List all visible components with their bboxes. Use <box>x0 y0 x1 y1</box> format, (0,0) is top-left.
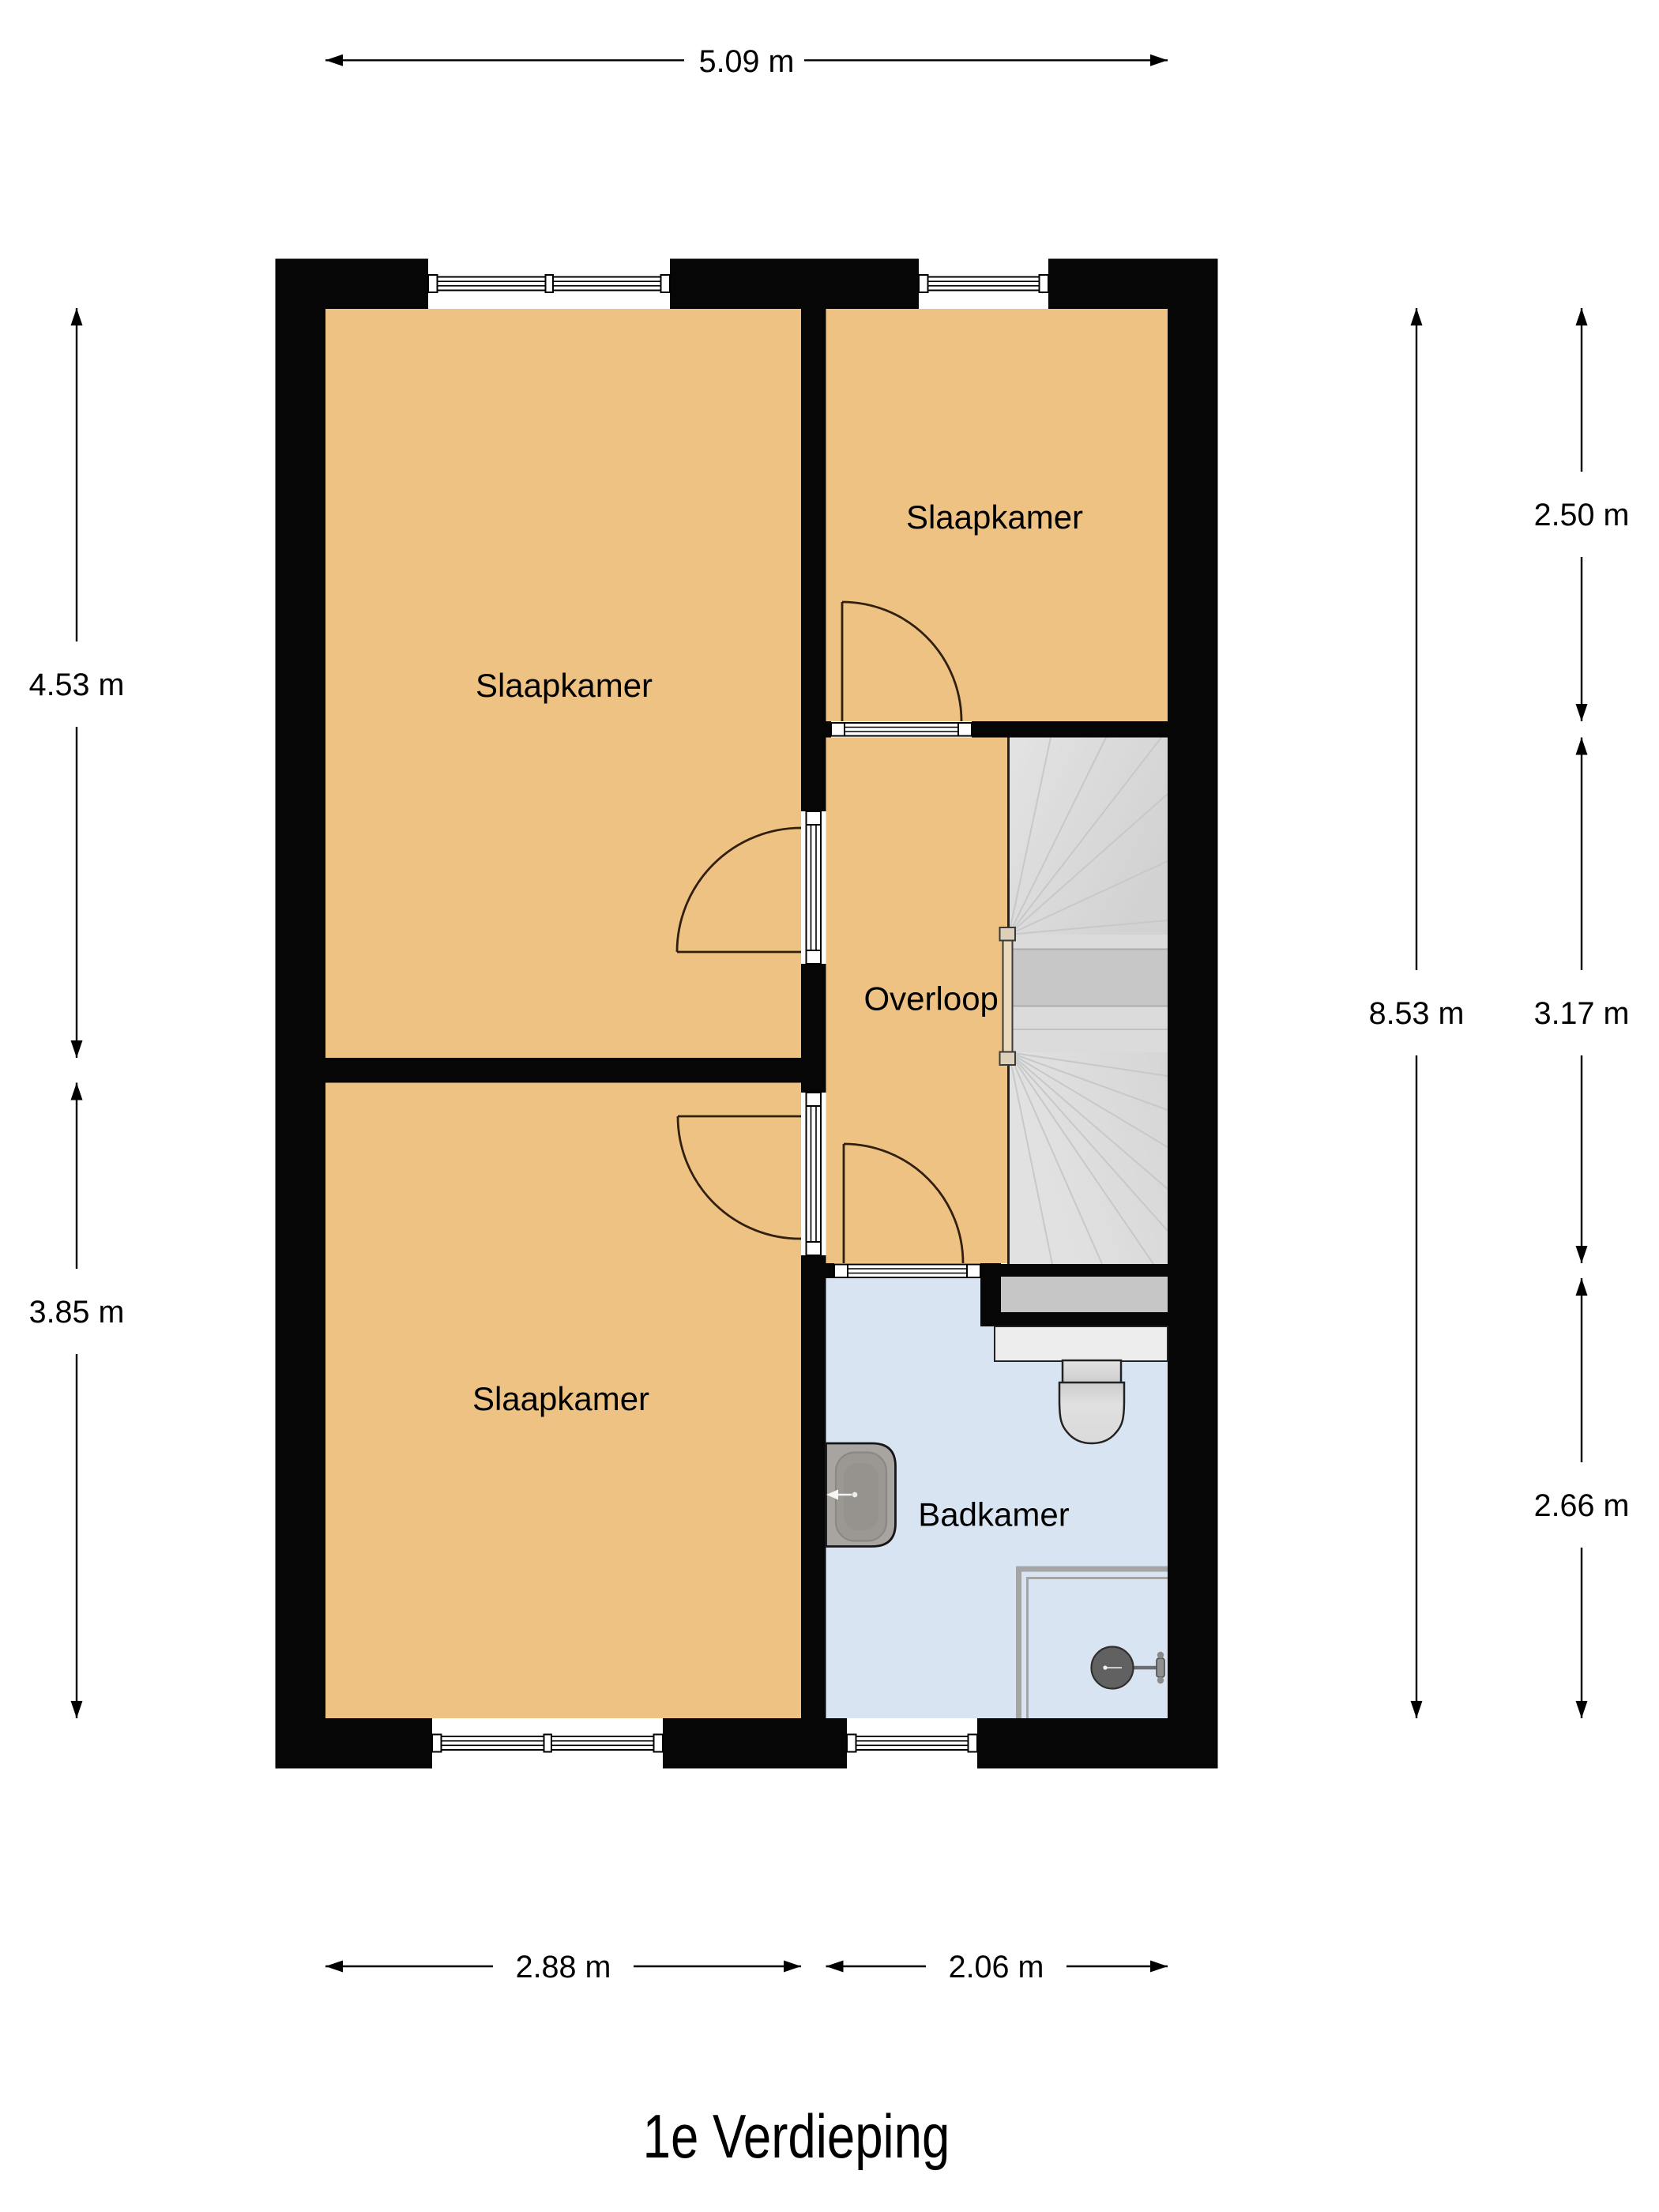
svg-text:5.09 m: 5.09 m <box>699 44 795 79</box>
svg-text:Slaapkamer: Slaapkamer <box>476 667 653 704</box>
svg-text:Slaapkamer: Slaapkamer <box>906 498 1083 536</box>
svg-text:2.06 m: 2.06 m <box>949 1950 1044 1984</box>
svg-text:2.50 m: 2.50 m <box>1534 498 1630 532</box>
svg-text:Overloop: Overloop <box>863 980 998 1018</box>
svg-text:3.17 m: 3.17 m <box>1534 996 1630 1031</box>
svg-text:1e Verdieping: 1e Verdieping <box>643 2103 950 2172</box>
svg-text:4.53 m: 4.53 m <box>29 668 125 702</box>
svg-text:2.66 m: 2.66 m <box>1534 1488 1630 1523</box>
svg-text:Slaapkamer: Slaapkamer <box>472 1380 649 1417</box>
svg-text:3.85 m: 3.85 m <box>29 1295 125 1330</box>
svg-text:Badkamer: Badkamer <box>918 1496 1069 1533</box>
svg-text:8.53 m: 8.53 m <box>1369 996 1465 1031</box>
svg-text:2.88 m: 2.88 m <box>516 1950 611 1984</box>
